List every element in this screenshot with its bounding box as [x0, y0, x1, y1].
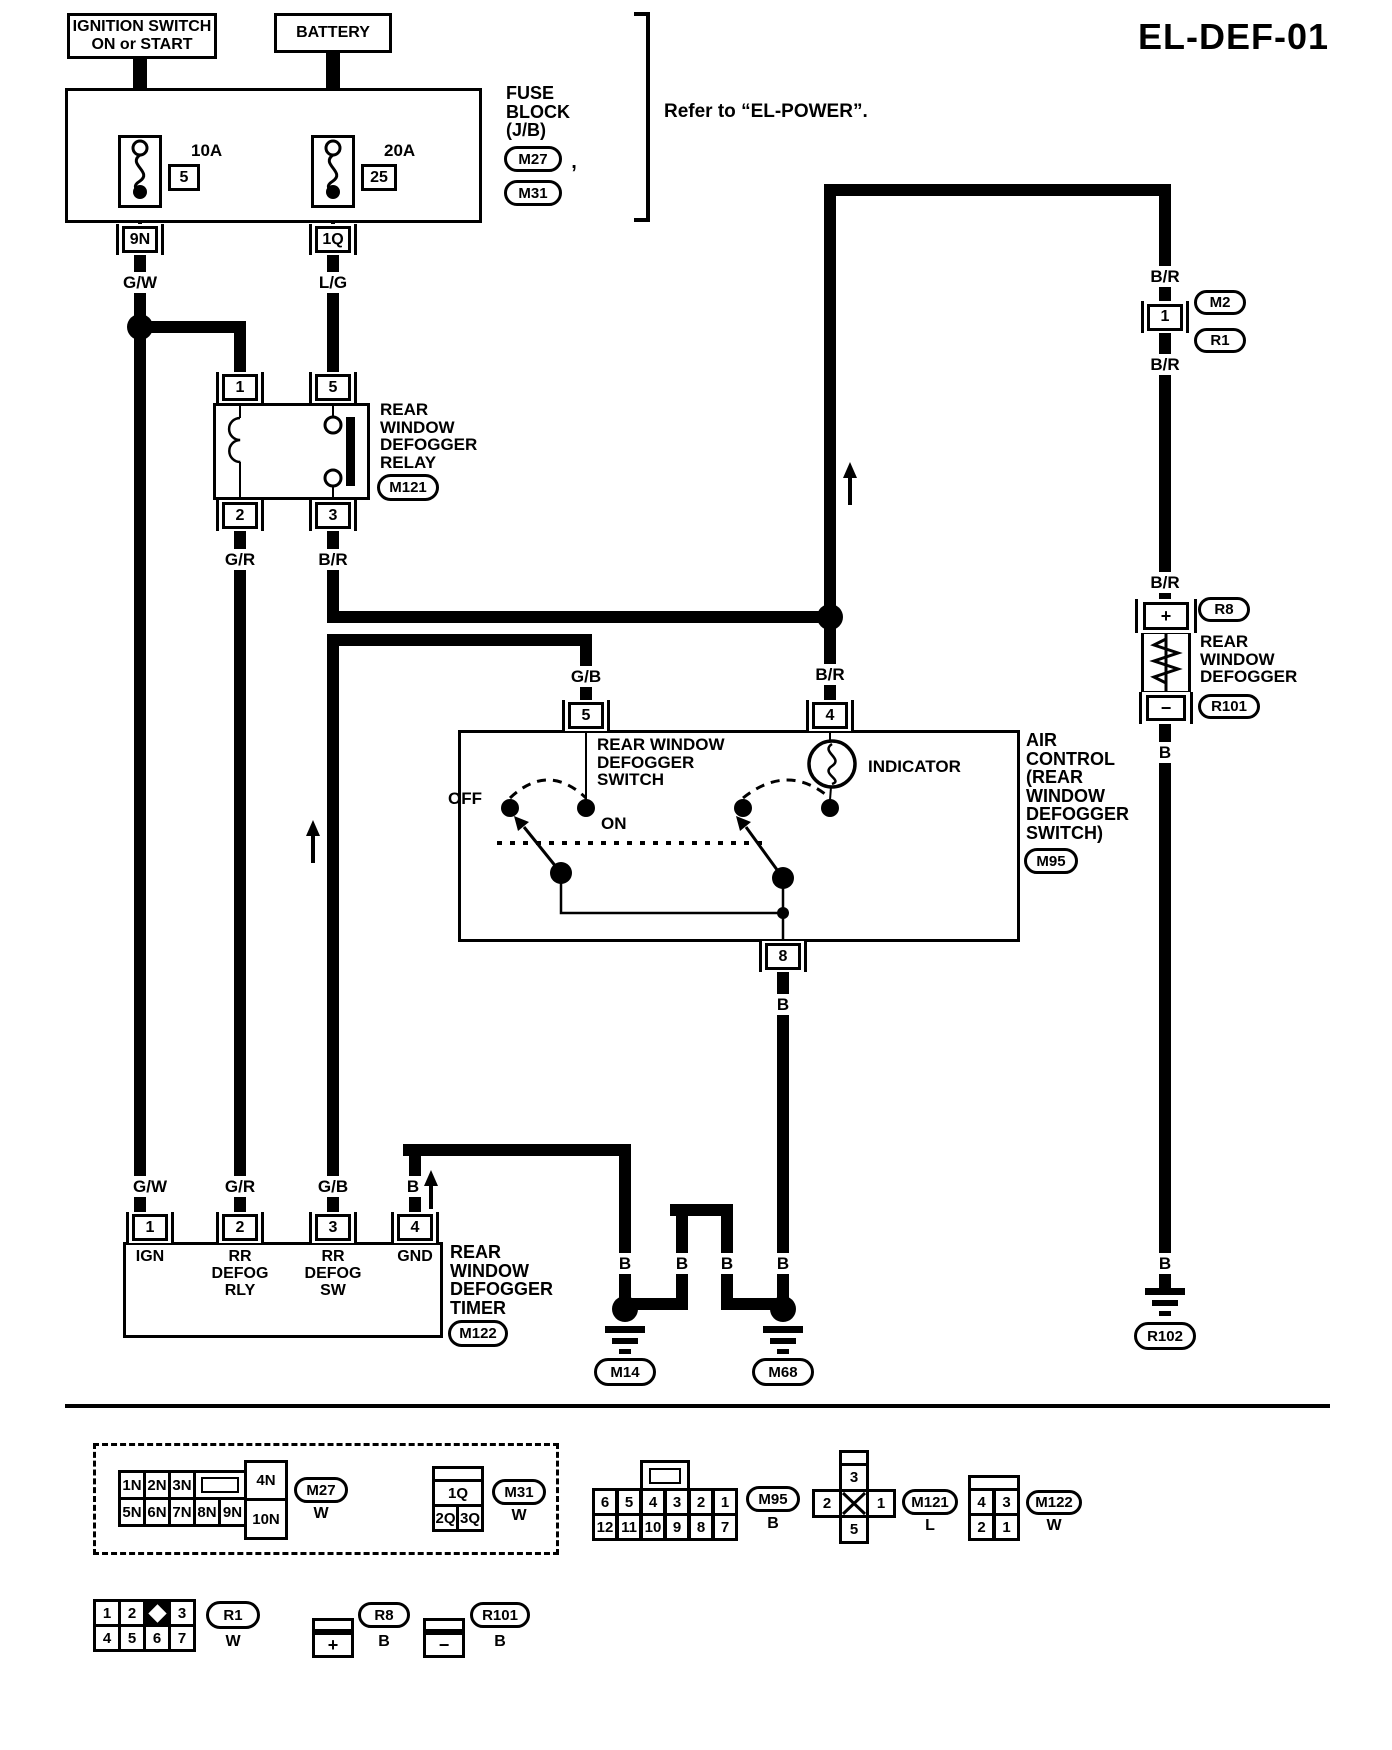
fuse-block-label: FUSE BLOCK (J/B): [506, 84, 570, 140]
wire-label-b: B: [403, 1176, 423, 1197]
legend-pin: 10N: [244, 1498, 288, 1540]
fuse1-amp-label: 10A: [187, 140, 226, 161]
wire-label-b: B: [773, 1253, 793, 1274]
wire-b-right: [1159, 724, 1171, 1288]
relay-pin3: 3: [309, 500, 357, 531]
wire-label-b: B: [1155, 1253, 1175, 1274]
legend-pin: 5: [118, 1624, 146, 1652]
bracket-line: [646, 12, 650, 222]
switch-on-label: ON: [597, 813, 631, 834]
legend-id-r101: R101: [470, 1602, 530, 1628]
ground-id-r102: R102: [1134, 1322, 1196, 1350]
junction-dot-m68: [770, 1296, 796, 1322]
legend-pin: 8: [688, 1513, 714, 1541]
switch-label: REAR WINDOW DEFOGGER SWITCH: [597, 736, 724, 789]
wire-label-b: B: [1155, 742, 1175, 763]
legend-pin: 6N: [143, 1497, 171, 1527]
wire-gb-horizontal: [327, 634, 592, 646]
connector-id-m122: M122: [448, 1320, 508, 1347]
switch-off-label: OFF: [444, 788, 486, 809]
fuse2-number-box: 25: [361, 164, 397, 191]
legend-pin: 2: [968, 1513, 995, 1541]
legend-pin: 1: [93, 1599, 121, 1627]
arrow-up-icon: [306, 820, 320, 836]
wire-label-br: B/R: [1146, 572, 1183, 593]
switch-pin8: 8: [759, 941, 807, 972]
legend-pin: 11: [616, 1513, 642, 1541]
wire-label-gb: G/B: [567, 666, 605, 687]
wire-ignition-feed: [133, 59, 147, 90]
legend-pin: 2N: [143, 1470, 171, 1500]
wire-label-b: B: [773, 994, 793, 1015]
legend-pin-blank: [193, 1470, 247, 1500]
timer-pin3-label: RR DEFOG SW: [305, 1249, 362, 1299]
battery-box: BATTERY: [274, 13, 392, 53]
timer-label: REAR WINDOW DEFOGGER TIMER: [450, 1243, 553, 1317]
wire-label-lg: L/G: [315, 272, 351, 293]
wire-label-gw: G/W: [119, 272, 161, 293]
wire-label-br: B/R: [1146, 354, 1183, 375]
bracket-top: [634, 12, 650, 16]
legend-color: W: [1046, 1518, 1061, 1535]
wire-label-br: B/R: [314, 549, 351, 570]
timer-pin2-label: RR DEFOG RLY: [212, 1249, 269, 1299]
legend-pin: 2: [688, 1488, 714, 1516]
wire-label-br: B/R: [811, 664, 848, 685]
connector-id-m2: M2: [1194, 290, 1246, 315]
legend-pin: 10: [640, 1513, 666, 1541]
legend-pin: 2Q: [432, 1504, 459, 1532]
legend-color: B: [767, 1516, 779, 1533]
junction-dot-br: [817, 604, 843, 630]
separator-line: [65, 1404, 1330, 1408]
legend-keyway: [143, 1599, 171, 1627]
arrow-stem: [311, 835, 315, 863]
wiring-diagram-page: EL-DEF-01 IGNITION SWITCH ON or START BA…: [0, 0, 1392, 1750]
body-connector-1: 1: [1141, 301, 1189, 333]
legend-pin: 4: [640, 1488, 666, 1516]
legend-keyway: [839, 1489, 869, 1518]
legend-pin: 1: [712, 1488, 738, 1516]
legend-pin: 3: [993, 1488, 1020, 1516]
timer-box: [123, 1242, 443, 1338]
connector-id-m31: M31: [504, 180, 562, 206]
timer-pin4: 4: [391, 1212, 439, 1243]
wire-b1: [619, 1144, 631, 1304]
legend-color: B: [494, 1634, 506, 1651]
wire-label-gw: G/W: [129, 1176, 171, 1197]
junction-dot-gw: [127, 314, 153, 340]
legend-pin: 9: [664, 1513, 690, 1541]
fuse-icon: [314, 138, 352, 205]
legend-pin: 12: [592, 1513, 618, 1541]
arrow-stem: [848, 477, 852, 505]
wire-label-b: B: [672, 1253, 692, 1274]
wire-label-gr: G/R: [221, 1176, 259, 1197]
legend-pin: 1N: [118, 1470, 146, 1500]
fuse1-symbol: [118, 135, 162, 208]
fuse2-amp-label: 20A: [380, 140, 419, 161]
defogger-minus-cup: −: [1139, 692, 1193, 724]
relay-pin5: 5: [309, 372, 357, 403]
x-icon: [842, 1492, 866, 1515]
legend-color: B: [378, 1634, 390, 1651]
refer-note: Refer to “EL-POWER”.: [664, 102, 868, 122]
legend-pin: 8N: [193, 1497, 221, 1527]
legend-sign: −: [439, 1636, 450, 1655]
wire-gw: [134, 255, 146, 1212]
wire-label-gb: G/B: [314, 1176, 352, 1197]
legend-pin: 5: [616, 1488, 642, 1516]
relay-pin1: 1: [216, 372, 264, 403]
legend-pin: 7: [712, 1513, 738, 1541]
legend-pin: 3: [168, 1599, 196, 1627]
connector-id-m95: M95: [1024, 848, 1078, 874]
legend-pin: 5: [839, 1515, 869, 1544]
relay-pin2: 2: [216, 500, 264, 531]
connector-id-r1: R1: [1194, 328, 1246, 353]
legend-color: W: [313, 1506, 328, 1523]
timer-pin3: 3: [309, 1212, 357, 1243]
wire-br-horizontal: [327, 611, 836, 623]
legend-id-m122: M122: [1026, 1490, 1082, 1515]
wire-label-b: B: [717, 1253, 737, 1274]
timer-pin2: 2: [216, 1212, 264, 1243]
ground-id-m68: M68: [752, 1358, 814, 1386]
legend-pin: 2: [812, 1489, 842, 1518]
arrow-up-icon: [843, 462, 857, 478]
fuse1-number-box: 5: [168, 164, 200, 191]
fuse-icon: [121, 138, 159, 205]
legend-pin: 6: [143, 1624, 171, 1652]
relay-box: [213, 403, 370, 500]
wire-label-b: B: [615, 1253, 635, 1274]
resistor-icon: [1144, 634, 1188, 691]
legend-id-m95: M95: [746, 1486, 800, 1512]
timer-pin1: 1: [126, 1212, 174, 1243]
legend-pin: 3: [839, 1463, 869, 1492]
timer-pin4-label: GND: [397, 1249, 433, 1266]
timer-pin1-label: IGN: [136, 1249, 164, 1266]
defogger-element: [1141, 631, 1191, 694]
defogger-label: REAR WINDOW DEFOGGER: [1200, 633, 1297, 686]
switch-pin5: 5: [562, 700, 610, 731]
legend-sign: +: [328, 1636, 339, 1655]
connector-id-r8: R8: [1198, 597, 1250, 622]
legend-pin: 1Q: [432, 1479, 484, 1507]
wire-gr: [234, 531, 246, 1212]
legend-pin: 9N: [218, 1497, 247, 1527]
relay-label: REAR WINDOW DEFOGGER RELAY: [380, 401, 477, 471]
legend-pin: 3N: [168, 1470, 196, 1500]
comma: ,: [567, 150, 581, 174]
legend-id-r1: R1: [206, 1601, 260, 1629]
legend-pin: 3: [664, 1488, 690, 1516]
legend-color: L: [925, 1518, 935, 1535]
legend-color: W: [225, 1634, 240, 1651]
page-title: EL-DEF-01: [1138, 16, 1329, 58]
connector-id-m27: M27: [504, 146, 562, 172]
legend-id-r8: R8: [358, 1602, 410, 1628]
wire-br-relay: [327, 531, 339, 623]
wire-label-br: B/R: [1146, 266, 1183, 287]
legend-pin: 4N: [244, 1460, 288, 1501]
legend-color: W: [511, 1508, 526, 1525]
legend-pin: 7N: [168, 1497, 196, 1527]
connector-1q: 1Q: [309, 224, 357, 255]
arrow-up-icon: [424, 1170, 438, 1186]
arrow-stem: [429, 1185, 433, 1209]
legend-pin: 2: [118, 1599, 146, 1627]
legend-pin: 5N: [118, 1497, 146, 1527]
connector-9n: 9N: [116, 224, 164, 255]
junction-dot-m14: [612, 1296, 638, 1322]
switch-pin4: 4: [806, 700, 854, 731]
legend-pin: 6: [592, 1488, 618, 1516]
wire-label-gr: G/R: [221, 549, 259, 570]
fuse2-symbol: [311, 135, 355, 208]
ground-id-m14: M14: [594, 1358, 656, 1386]
legend-pin: 3Q: [456, 1504, 484, 1532]
indicator-label: INDICATOR: [864, 756, 965, 777]
bracket-bottom: [634, 218, 650, 222]
legend-tab: [640, 1460, 690, 1491]
wire-riser: [824, 190, 836, 623]
wire-battery-feed: [326, 53, 340, 90]
legend-pin: 7: [168, 1624, 196, 1652]
legend-pin: 4: [968, 1488, 995, 1516]
relay-internals-icon: [216, 406, 367, 497]
wire-gb-long: [327, 634, 339, 1212]
connector-id-m121: M121: [377, 474, 439, 501]
legend-pin: 1: [993, 1513, 1020, 1541]
connector-id-r101: R101: [1198, 694, 1260, 719]
wire-gnd-horizontal: [403, 1144, 631, 1156]
legend-pin: 1: [866, 1489, 896, 1518]
defogger-plus-cup: +: [1135, 599, 1197, 633]
wire-branch-v: [234, 321, 246, 373]
legend-id-m31: M31: [492, 1479, 546, 1505]
air-control-label: AIR CONTROL (REAR WINDOW DEFOGGER SWITCH…: [1026, 731, 1129, 842]
legend-pin: 4: [93, 1624, 121, 1652]
ignition-switch-box: IGNITION SWITCH ON or START: [67, 13, 217, 59]
wire-riser-top: [824, 184, 1171, 196]
legend-id-m121: M121: [902, 1489, 958, 1515]
legend-id-m27: M27: [294, 1477, 348, 1503]
